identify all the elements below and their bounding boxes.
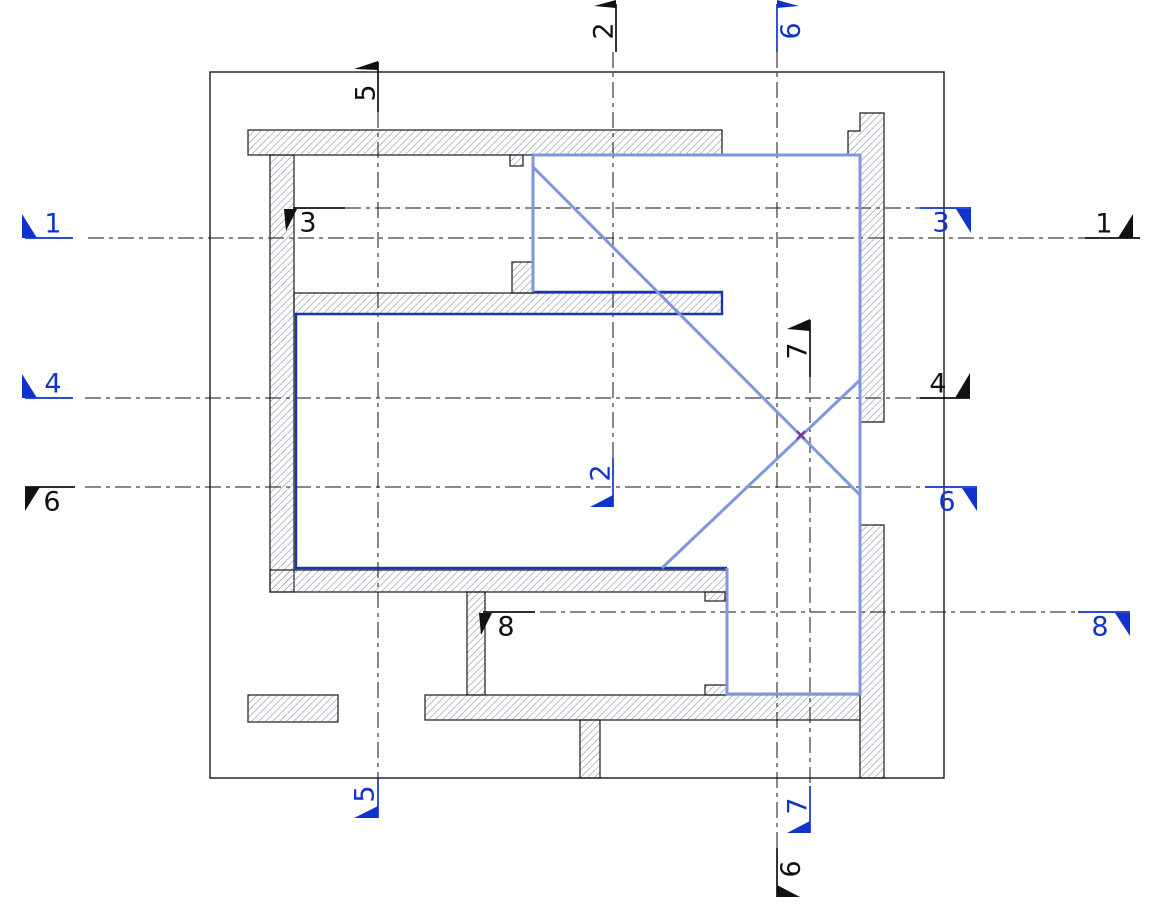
section-flag-triangle (777, 0, 799, 8)
wall-bottom-strip[interactable] (425, 695, 860, 720)
section-flag-triangle (1118, 214, 1133, 238)
section-marker-bottom-9[interactable]: 9 (774, 848, 805, 897)
section-flag-triangle (787, 821, 810, 833)
wall-mid-tab[interactable] (512, 262, 533, 293)
section-flag-triangle (594, 0, 616, 8)
section-flag-triangle (777, 885, 800, 897)
highlighted-room[interactable] (533, 155, 860, 694)
section-flag-triangle (590, 495, 613, 507)
walls-group[interactable] (248, 113, 884, 778)
cad-drawing-canvas[interactable]: 2 9 5 1 4 6 3 3 1 (0, 0, 1164, 906)
section-marker-inner-8[interactable]: 8 (479, 612, 535, 643)
room-outline-navy[interactable] (296, 292, 727, 568)
section-flag-triangle (787, 319, 810, 331)
section-flag-triangle (354, 806, 378, 818)
section-flag-triangle (22, 214, 37, 238)
section-marker-right-4[interactable]: 4 (920, 369, 970, 400)
wall-isolated-block[interactable] (248, 695, 338, 722)
wall-mid-strip[interactable] (294, 293, 722, 314)
wall-right-upper[interactable] (848, 113, 884, 422)
section-marker-inner-7[interactable]: 7 (783, 319, 814, 377)
section-label: 9 (774, 22, 805, 39)
section-flag-triangle (956, 209, 971, 233)
section-flag-triangle (955, 373, 970, 398)
section-label: 2 (586, 464, 617, 481)
section-marker-left-1[interactable]: 1 (22, 209, 73, 240)
wall-bottom-mid-vertical[interactable] (580, 720, 600, 778)
section-label: 1 (1095, 209, 1112, 240)
section-label: 4 (44, 369, 61, 400)
section-marker-top-2[interactable]: 2 (589, 0, 620, 52)
section-label: 6 (938, 487, 955, 518)
section-marker-right-1[interactable]: 1 (1085, 209, 1140, 240)
wall-bottom-notch[interactable] (705, 592, 725, 601)
section-marker-inner-2[interactable]: 2 (586, 458, 617, 507)
section-label: 8 (1091, 612, 1108, 643)
section-flag-triangle (354, 61, 378, 70)
wall-right-lower[interactable] (860, 525, 884, 778)
section-marker-top-5[interactable]: 5 (351, 61, 382, 112)
wall-bottom-strip-nub[interactable] (705, 685, 727, 695)
wall-top[interactable] (248, 130, 722, 155)
plan-outer-border (210, 72, 944, 778)
section-flag-triangle (1115, 613, 1130, 636)
section-label: 2 (589, 22, 620, 39)
section-label: 6 (43, 487, 60, 518)
section-flag-triangle (22, 374, 37, 398)
section-marker-left-4[interactable]: 4 (22, 369, 73, 400)
section-marker-right-8[interactable]: 8 (1078, 612, 1130, 643)
section-flag-triangle (962, 488, 977, 511)
highlight-diagonal-1[interactable] (533, 167, 860, 495)
section-label: 5 (351, 84, 382, 101)
section-label: 9 (774, 860, 805, 877)
wall-top-nub[interactable] (510, 155, 523, 166)
section-marker-bottom-5[interactable]: 5 (350, 779, 381, 818)
section-marker-right-6[interactable]: 6 (925, 487, 977, 518)
section-label: 8 (497, 612, 514, 643)
section-marker-bottom-7[interactable]: 7 (783, 786, 814, 833)
section-marker-top-9[interactable]: 9 (774, 0, 805, 52)
section-label: 7 (783, 797, 814, 814)
section-label: 1 (44, 209, 61, 240)
section-marker-left-6[interactable]: 6 (25, 487, 75, 518)
section-label: 7 (783, 342, 814, 359)
wall-room-bottom[interactable] (270, 570, 727, 592)
wall-lower-vertical[interactable] (467, 592, 485, 695)
section-label: 3 (932, 208, 949, 239)
section-label: 5 (350, 785, 381, 802)
highlight-diagonal-2[interactable] (662, 380, 860, 568)
section-marker-right-3[interactable]: 3 (920, 208, 971, 239)
section-label: 4 (929, 369, 946, 400)
highlight-boundary[interactable] (533, 155, 860, 694)
section-flag-triangle (25, 487, 40, 511)
section-label: 3 (299, 208, 316, 239)
